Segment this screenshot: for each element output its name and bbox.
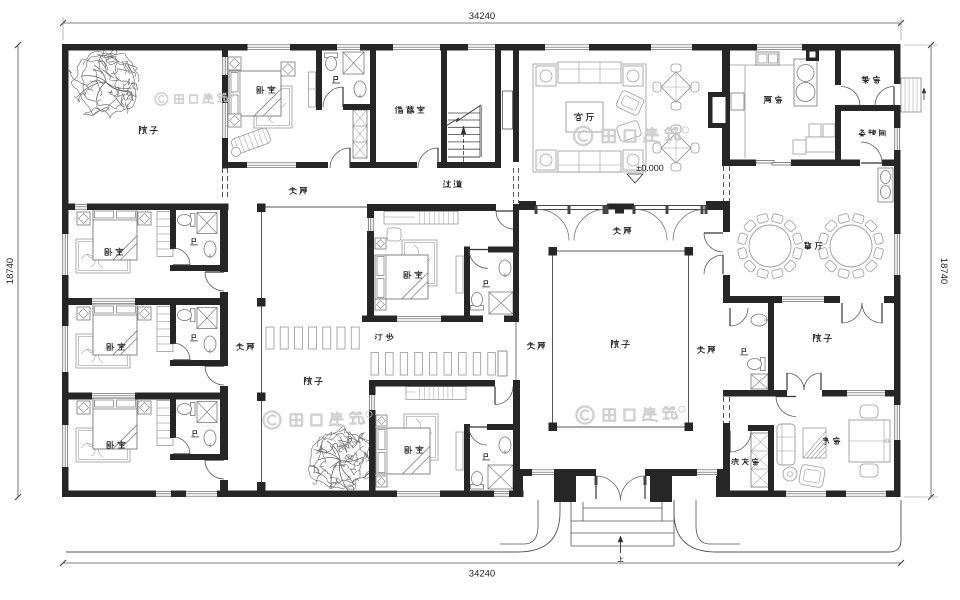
- svg-text:18740: 18740: [938, 258, 949, 284]
- svg-text:18740: 18740: [5, 258, 16, 284]
- svg-text:34240: 34240: [469, 568, 495, 579]
- svg-text:±0.000: ±0.000: [636, 163, 663, 173]
- svg-text:34240: 34240: [469, 11, 495, 22]
